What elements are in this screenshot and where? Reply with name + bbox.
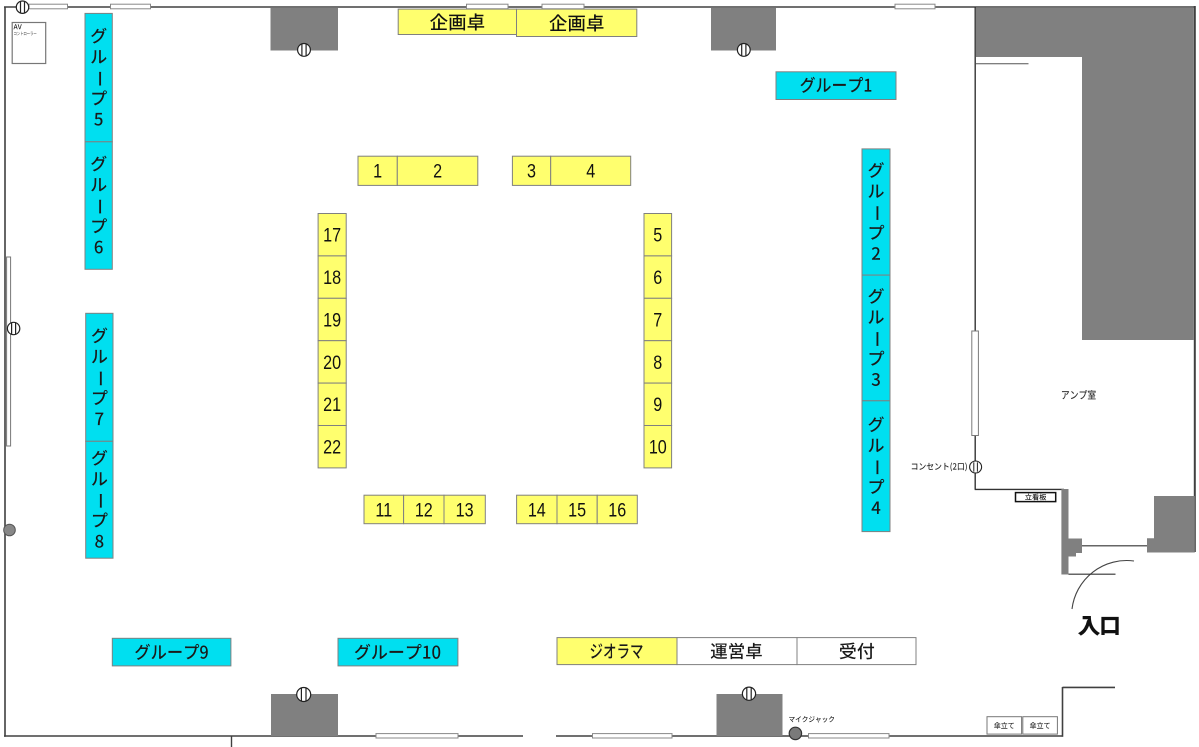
svg-text:15: 15 [568,499,586,521]
svg-text:8: 8 [653,352,662,374]
svg-text:5: 5 [653,224,662,246]
svg-text:3: 3 [527,160,536,182]
svg-text:1: 1 [373,160,382,182]
svg-text:20: 20 [323,352,341,374]
svg-text:7: 7 [653,309,662,331]
svg-text:22: 22 [323,436,341,458]
svg-text:21: 21 [323,394,341,416]
svg-text:13: 13 [456,499,474,521]
svg-text:12: 12 [415,499,433,521]
svg-text:14: 14 [528,499,546,521]
svg-text:18: 18 [323,267,341,289]
svg-text:11: 11 [375,499,392,521]
svg-text:6: 6 [653,267,662,289]
svg-text:19: 19 [323,309,341,331]
svg-text:10: 10 [649,436,667,458]
svg-text:2: 2 [433,160,442,182]
svg-text:17: 17 [323,224,341,246]
svg-text:9: 9 [653,394,662,416]
svg-text:4: 4 [586,160,595,182]
svg-text:16: 16 [608,499,626,521]
